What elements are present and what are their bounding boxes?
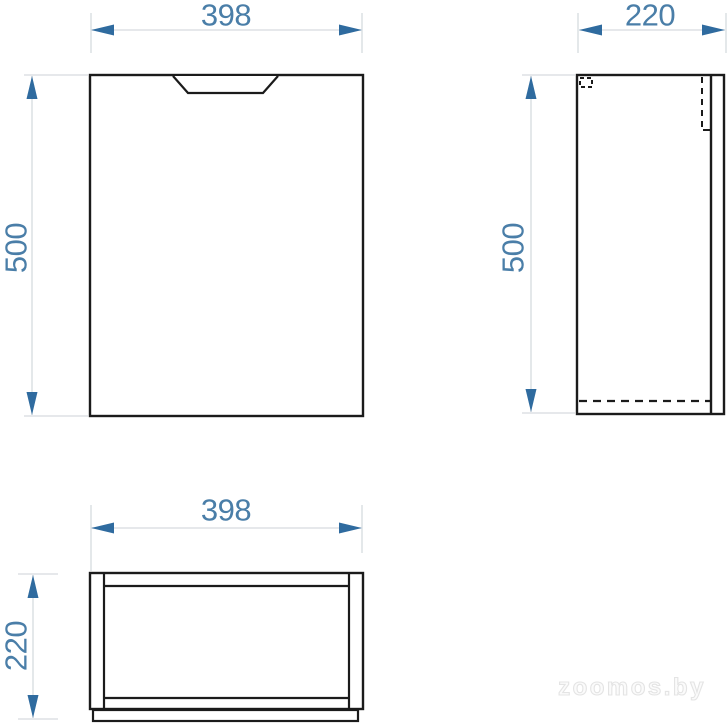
door-panel-strip [93,710,358,721]
arrowhead-down [28,695,39,718]
dimension-label-front-width: 398 [201,0,251,31]
dimension-label-top-width: 398 [201,495,251,526]
arrowhead-down [27,392,38,415]
dimension-label-front-height: 500 [1,223,32,273]
dimension-label-side-width: 220 [625,0,675,31]
front-view-handle-notch [173,76,278,93]
dimension-label-side-height: 500 [498,223,529,273]
arrowhead-right [339,25,362,36]
top-view-body [90,573,363,709]
front-view-body [90,75,363,416]
front-height-dimension [24,75,88,416]
arrowhead-down [526,389,537,412]
drawing-linework [0,0,728,723]
arrowhead-right [339,523,362,534]
arrowhead-up [28,575,39,598]
top-view [90,573,363,721]
dimension-label-top-depth: 220 [1,621,32,671]
side-view [577,75,724,414]
front-view [90,75,363,416]
technical-drawing-canvas: 398 220 500 500 398 220 zoomos.by [0,0,728,723]
arrowhead-left [579,25,602,36]
watermark-text: zoomos.by [558,674,706,702]
arrowhead-left [91,523,114,534]
arrowhead-up [526,76,537,99]
arrowhead-up [27,76,38,99]
arrowhead-right [702,25,725,36]
arrowhead-left [91,25,114,36]
